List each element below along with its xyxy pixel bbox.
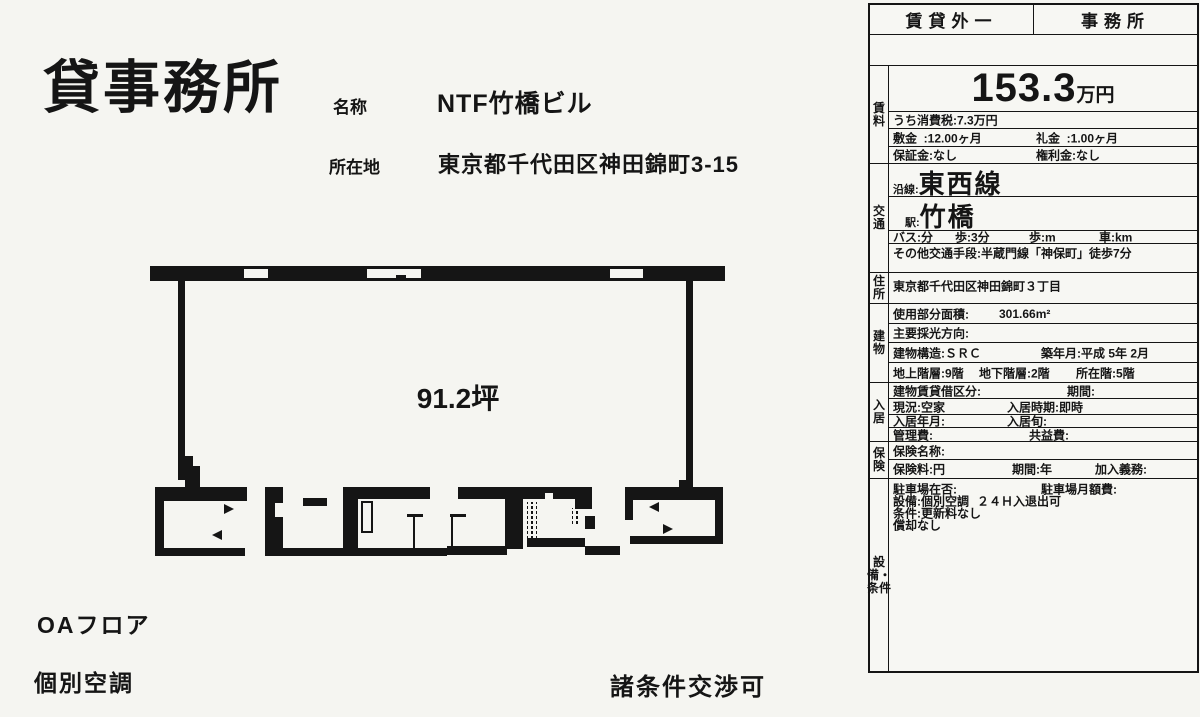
section-facilities-label: 設備・条件 xyxy=(870,479,889,671)
location-value: 東京都千代田区神田錦町3-15 xyxy=(438,147,739,179)
rent-key-money: 礼金 :1.00ヶ月 xyxy=(1036,129,1118,146)
transport-line-row: 沿線: 東西線 xyxy=(889,164,1197,197)
section-facilities: 設備・条件 駐車場在否: 駐車場月額費: 設備:個別空調 ２４Ｈ入退出可 条件:… xyxy=(870,479,1197,671)
structure: 建物構造:ＳＲＣ xyxy=(893,344,981,361)
other-transport: その他交通手段:半蔵門線「神保町」徒歩7分 xyxy=(893,245,1132,262)
page-title: 貸事務所 xyxy=(43,60,283,117)
section-occupancy: 入居 建物賃貸借区分: 期間: 現況:空家 入居時期:即時 入居年月: 入居旬:… xyxy=(870,383,1197,442)
rent-amount-unit: 万円 xyxy=(1077,80,1115,107)
floors-above: 地上階層:9階 xyxy=(893,364,964,381)
transport-access-row: バス:分 歩:3分 歩:m 車:km xyxy=(889,231,1197,244)
line-value: 東西線 xyxy=(919,164,1003,201)
section-transport-label: 交通 xyxy=(870,164,889,272)
insurance-obligation: 加入義務: xyxy=(1095,461,1147,478)
rent-tax-row: うち消費税:7.3万円 xyxy=(889,112,1197,129)
floor-plan: 91.2坪 xyxy=(140,250,760,570)
table-header: 賃貸外一 事務所 xyxy=(870,5,1197,35)
lease-period: 期間: xyxy=(1067,382,1095,399)
transport-station-row: 駅: 竹橋 xyxy=(889,197,1197,231)
feature-oa-floor: OAフロア xyxy=(37,606,151,640)
note-negotiable: 諸条件交渉可 xyxy=(610,667,766,702)
section-insurance: 保険 保険名称: 保険料:円 期間:年 加入義務: xyxy=(870,442,1197,479)
feature-aircon: 個別空調 xyxy=(34,664,134,698)
header-category: 賃貸外一 xyxy=(870,5,1034,34)
area-label: 使用部分面積: xyxy=(893,305,969,322)
address-value: 東京都千代田区神田錦町３丁目 xyxy=(893,278,1061,295)
section-rent-label: 賃料 xyxy=(870,66,889,163)
rent-rights: 権利金:なし xyxy=(1036,147,1100,164)
building-name-value: NTF竹橋ビル xyxy=(437,84,593,120)
insurance-fee-row: 保険料:円 期間:年 加入義務: xyxy=(889,460,1197,478)
building-floors-row: 地上階層:9階 地下階層:2階 所在階:5階 xyxy=(889,363,1197,382)
management-fee: 管理費: xyxy=(893,426,933,443)
building-area-row: 使用部分面積: 301.66m² xyxy=(889,304,1197,324)
floor-area-label: 91.2坪 xyxy=(417,383,500,414)
rent-amount: 153.3 xyxy=(971,66,1076,111)
rent-amount-row: 153.3 万円 xyxy=(889,66,1197,112)
lease-type-row: 建物賃貸借区分: 期間: xyxy=(889,383,1197,399)
building-name-label: 名称 xyxy=(333,93,367,118)
insurance-fee: 保険料:円 xyxy=(893,461,945,478)
facilities-row: 駐車場在否: 駐車場月額費: 設備:個別空調 ２４Ｈ入退出可 条件:更新料なし … xyxy=(889,479,1197,671)
section-rent: 賃料 153.3 万円 うち消費税:7.3万円 敷金 :12.00ヶ月 礼金 :… xyxy=(870,66,1197,164)
rent-tax: うち消費税:7.3万円 xyxy=(893,112,998,129)
blank-row xyxy=(870,35,1197,66)
section-occupancy-label: 入居 xyxy=(870,383,889,441)
rent-deposit-row: 敷金 :12.00ヶ月 礼金 :1.00ヶ月 xyxy=(889,129,1197,147)
address-row: 東京都千代田区神田錦町３丁目 xyxy=(889,273,1197,303)
walk-time: 歩:3分 xyxy=(955,229,990,246)
line-label: 沿線: xyxy=(893,181,919,197)
section-transport: 交通 沿線: 東西線 駅: 竹橋 バス:分 歩:3分 歩:m 車:km その他交… xyxy=(870,164,1197,273)
built-date: 築年月:平成 5年 2月 xyxy=(1041,344,1149,361)
section-building-label: 建物 xyxy=(870,304,889,382)
walk-distance: 歩:m xyxy=(1029,229,1056,246)
rent-guarantee: 保証金:なし xyxy=(893,147,957,164)
section-building: 建物 使用部分面積: 301.66m² 主要採光方向: 建物構造:ＳＲＣ 築年月… xyxy=(870,304,1197,383)
floor-located: 所在階:5階 xyxy=(1076,364,1135,381)
insurance-name-row: 保険名称: xyxy=(889,442,1197,460)
car-distance: 車:km xyxy=(1099,229,1132,246)
fees-row: 管理費: 共益費: xyxy=(889,428,1197,441)
insurance-period: 期間:年 xyxy=(1012,461,1052,478)
lease-type: 建物賃貸借区分: xyxy=(893,382,981,399)
light-direction: 主要採光方向: xyxy=(893,325,969,342)
spec-table: 賃貸外一 事務所 賃料 153.3 万円 うち消費税:7.3万円 敷金 :12.… xyxy=(868,3,1199,673)
transport-other-row: その他交通手段:半蔵門線「神保町」徒歩7分 xyxy=(889,244,1197,272)
insurance-name: 保険名称: xyxy=(893,442,945,459)
bus-time: バス:分 xyxy=(893,229,933,246)
building-structure-row: 建物構造:ＳＲＣ 築年月:平成 5年 2月 xyxy=(889,343,1197,363)
floors-below: 地下階層:2階 xyxy=(979,364,1050,381)
area-value: 301.66m² xyxy=(999,307,1050,321)
section-insurance-label: 保険 xyxy=(870,442,889,478)
condition-amortization: 償却なし xyxy=(893,517,941,534)
rent-deposit: 敷金 :12.00ヶ月 xyxy=(893,129,982,146)
common-fee: 共益費: xyxy=(1029,426,1069,443)
building-light-row: 主要採光方向: xyxy=(889,324,1197,343)
location-label: 所在地 xyxy=(329,153,380,178)
header-type: 事務所 xyxy=(1034,5,1197,34)
rent-guarantee-row: 保証金:なし 権利金:なし xyxy=(889,147,1197,163)
section-address: 住所 東京都千代田区神田錦町３丁目 xyxy=(870,273,1197,304)
section-address-label: 住所 xyxy=(870,273,889,303)
